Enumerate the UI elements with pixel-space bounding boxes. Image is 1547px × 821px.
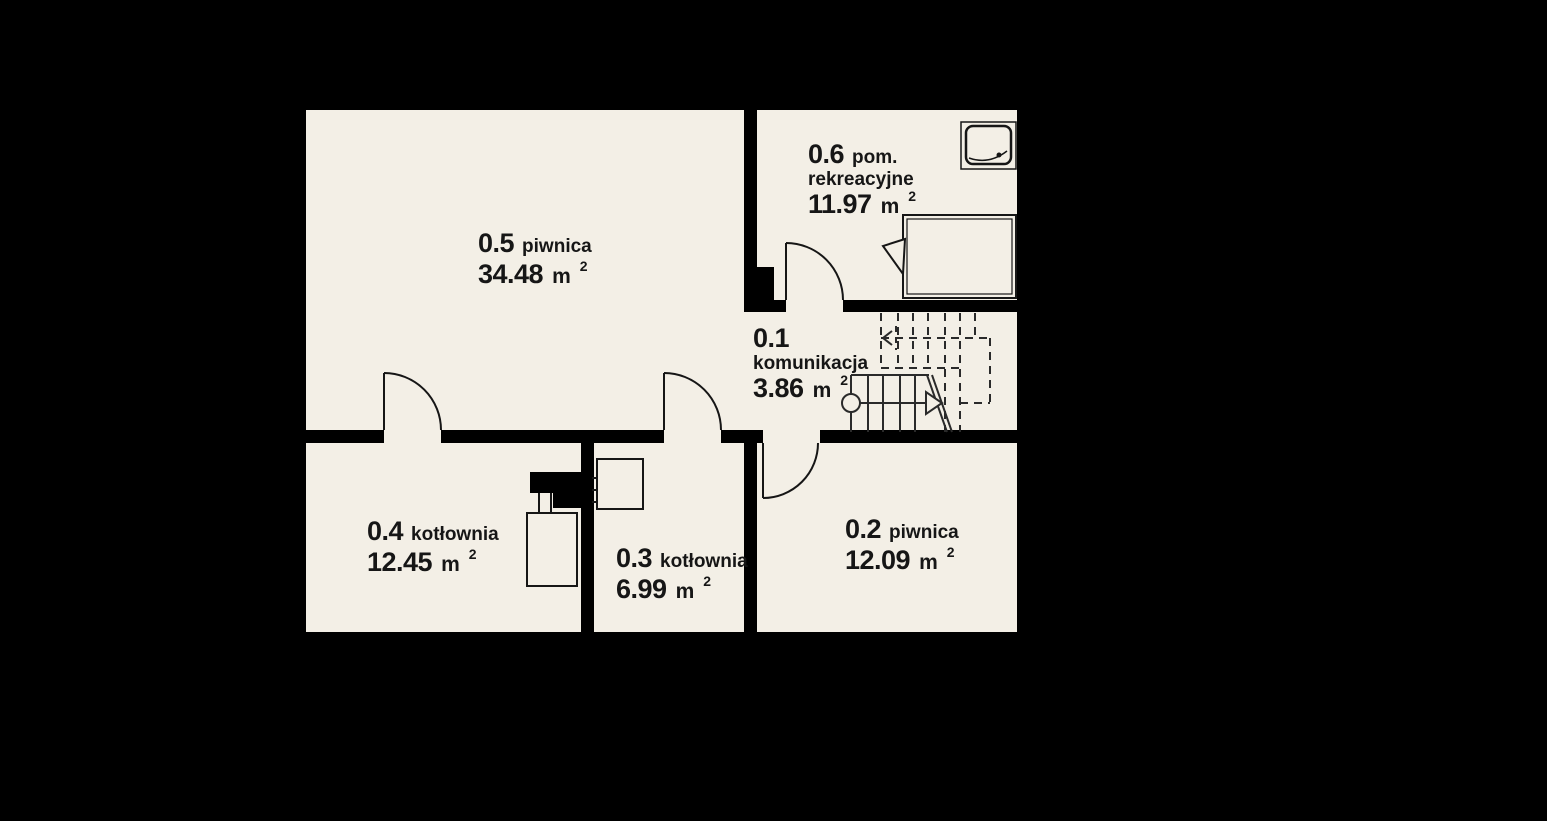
room-area: 12.45 bbox=[367, 549, 432, 576]
room-name: pom. bbox=[852, 148, 897, 167]
bed-icon bbox=[883, 215, 1016, 298]
wall-vertical-05-06 bbox=[744, 110, 757, 312]
room-area: 11.97 bbox=[808, 191, 872, 218]
area-unit: m bbox=[919, 552, 938, 573]
room-label-0-6: 0.6 pom. rekreacyjne 11.97 m2 bbox=[808, 141, 916, 222]
room-label-0-5: 0.5 piwnica 34.48 m2 bbox=[478, 230, 592, 292]
area-exponent: 2 bbox=[908, 189, 916, 203]
room-number: 0.5 bbox=[478, 230, 514, 257]
room-name: piwnica bbox=[522, 237, 592, 256]
wall-vertical-04-03 bbox=[581, 443, 594, 632]
area-exponent: 2 bbox=[469, 547, 477, 561]
room-name-line2: rekreacyjne bbox=[808, 170, 914, 189]
area-exponent: 2 bbox=[947, 545, 955, 559]
area-unit: m bbox=[813, 380, 832, 401]
room-name: kotłownia bbox=[660, 552, 748, 571]
room-number: 0.2 bbox=[845, 516, 881, 543]
water-heater-icon bbox=[592, 459, 643, 509]
room-name: kotłownia bbox=[411, 525, 499, 544]
floor-plan-canvas: 0.5 piwnica 34.48 m2 0.6 pom. rekreacyjn… bbox=[0, 0, 1547, 821]
area-unit: m bbox=[881, 196, 900, 217]
area-unit: m bbox=[441, 554, 460, 575]
room-label-0-3: 0.3 kotłownia 6.99 m2 bbox=[616, 545, 748, 607]
room-area: 6.99 bbox=[616, 576, 667, 603]
floor-plan bbox=[0, 0, 1547, 821]
room-label-0-1: 0.1 komunikacja 3.86 m2 bbox=[753, 325, 868, 406]
wall-main-seg2 bbox=[441, 430, 664, 443]
area-exponent: 2 bbox=[580, 259, 588, 273]
room-label-0-2: 0.2 piwnica 12.09 m2 bbox=[845, 516, 959, 578]
shower-tray-icon bbox=[961, 122, 1016, 169]
room-number: 0.6 bbox=[808, 141, 844, 168]
wall-main-seg3 bbox=[721, 430, 763, 443]
room-name: piwnica bbox=[889, 523, 959, 542]
room-area: 34.48 bbox=[478, 261, 543, 288]
wall-06-01-left bbox=[744, 300, 786, 312]
room-area: 3.86 bbox=[753, 375, 804, 402]
area-unit: m bbox=[552, 266, 571, 287]
room-area: 12.09 bbox=[845, 547, 910, 574]
area-unit: m bbox=[676, 581, 695, 602]
boiler-icon bbox=[527, 513, 577, 586]
wall-06-01-right bbox=[843, 300, 1017, 312]
wall-main-seg4 bbox=[820, 430, 1017, 443]
area-exponent: 2 bbox=[703, 574, 711, 588]
room-name: komunikacja bbox=[753, 354, 868, 373]
room-label-0-4: 0.4 kotłownia 12.45 m2 bbox=[367, 518, 499, 580]
room-number: 0.4 bbox=[367, 518, 403, 545]
wall-main-seg1 bbox=[306, 430, 384, 443]
area-exponent: 2 bbox=[840, 373, 848, 387]
room-number: 0.1 bbox=[753, 325, 789, 352]
room-number: 0.3 bbox=[616, 545, 652, 572]
